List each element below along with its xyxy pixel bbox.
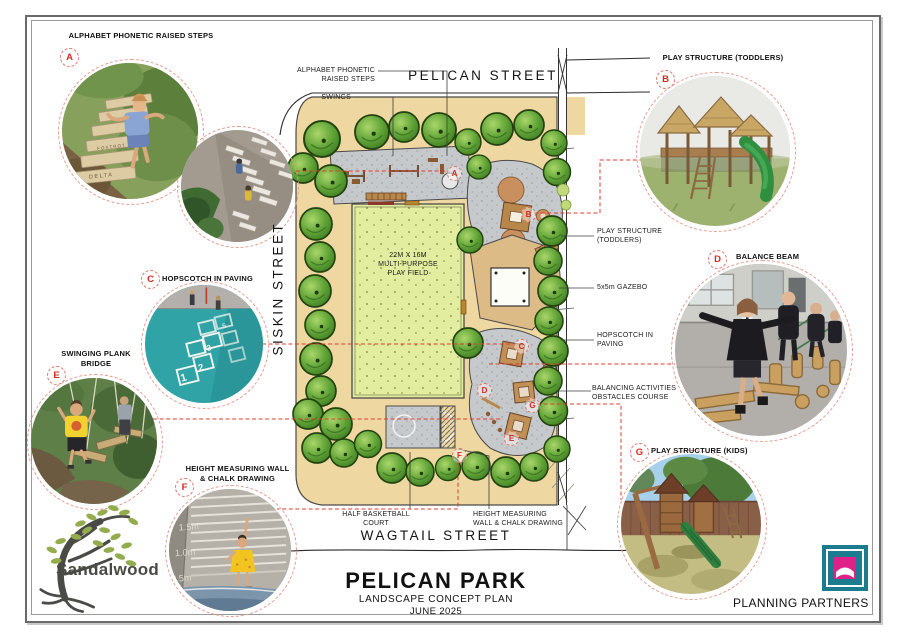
callout-marker-e: E — [47, 366, 66, 385]
plan-label-toddlers: PLAY STRUCTURE (TODDLERS) — [597, 227, 672, 245]
plan-label-alphabet-steps: ALPHABET PHONETIC RAISED STEPS — [285, 66, 375, 84]
street-name-pelican: PELICAN STREET — [398, 68, 568, 83]
callout-marker-f: F — [175, 478, 194, 497]
page-subtitle: LANDSCAPE CONCEPT PLAN — [300, 594, 572, 605]
plan-marker-b: B — [521, 207, 536, 222]
sandalwood-tree-icon — [32, 497, 142, 615]
plan-marker-g: G — [525, 398, 540, 413]
plan-label-gazebo: 5x5m GAZEBO — [597, 283, 672, 292]
plan-label-swings: SWINGS — [305, 93, 351, 102]
street-name-wagtail: WAGTAIL STREET — [350, 528, 522, 543]
callout-title-c: HOPSCOTCH IN PAVING — [162, 274, 282, 284]
title-block: PELICAN PARK LANDSCAPE CONCEPT PLAN JUNE… — [300, 569, 572, 617]
height-measuring-wall — [441, 406, 455, 448]
plan-label-hopscotch: HOPSCOTCH IN PAVING — [597, 331, 672, 349]
callout-title-a: ALPHABET PHONETIC RAISED STEPS — [66, 31, 216, 41]
planning-partners-icon — [822, 545, 868, 591]
photo-alphabet-steps: D E L T A F O X T R O T — [62, 63, 198, 199]
page: { "callouts": [ {"letter":"A","title":"A… — [0, 0, 900, 636]
road-edge-bottom — [290, 549, 640, 551]
photo-play-structure-toddlers — [640, 76, 790, 226]
plan-marker-e: E — [504, 431, 519, 446]
callout-marker-g: G — [630, 443, 649, 462]
photo-swinging-plank-bridge — [31, 378, 157, 504]
street-name-siskin: SISKIN STREET — [271, 226, 286, 356]
plan-label-play-field: 22M X 16M MULTI-PURPOSE PLAY FIELD — [368, 251, 448, 278]
callout-marker-c: C — [141, 270, 160, 289]
plan-marker-a: A — [447, 166, 462, 181]
callout-title-g: PLAY STRUCTURE (KIDS) — [651, 446, 766, 456]
callout-title-e: SWINGING PLANK BRIDGE — [52, 349, 140, 369]
callout-marker-b: B — [656, 70, 675, 89]
plan-label-basketball: HALF BASKETBALL COURT — [340, 510, 412, 528]
callout-title-f: HEIGHT MEASURING WALL & CHALK DRAWING — [180, 464, 295, 484]
plan-label-height-wall: HEIGHT MEASURING WALL & CHALK DRAWING — [473, 510, 578, 528]
photo-balance-beam — [675, 264, 847, 436]
callout-marker-d: D — [708, 250, 727, 269]
photo-hopscotch: 1 2 3 5 — [145, 285, 263, 403]
plan-marker-f: F — [452, 448, 467, 463]
sandalwood-logo — [28, 497, 253, 615]
page-date: JUNE 2025 — [300, 606, 572, 617]
callout-marker-a: A — [60, 48, 79, 67]
page-title: PELICAN PARK — [300, 569, 572, 592]
planning-partners-text: PLANNING PARTNERS — [733, 596, 878, 610]
planning-partners-logo — [822, 545, 868, 591]
plan-marker-c: C — [514, 339, 529, 354]
callout-title-d: BALANCE BEAM — [736, 252, 826, 262]
plan-label-balancing: BALANCING ACTIVITIES OBSTACLES COURSE — [592, 384, 687, 402]
callout-title-b: PLAY STRUCTURE (TODDLERS) — [648, 53, 798, 63]
plan-marker-d: D — [477, 383, 492, 398]
photo-play-structure-kids — [621, 454, 761, 594]
sandalwood-logo-text: Sandalwood — [56, 560, 159, 580]
